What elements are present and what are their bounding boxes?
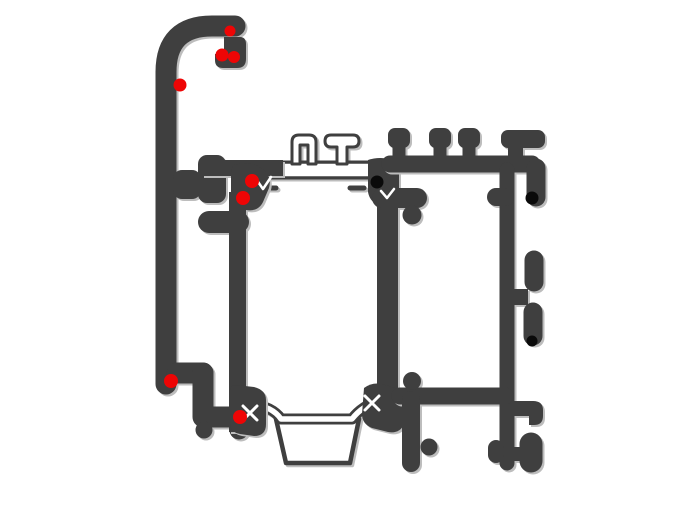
- screw-boss-stem: [434, 143, 447, 159]
- black-marker-dot: [526, 192, 539, 205]
- black-marker-dot: [371, 176, 384, 189]
- side-clip-block: [512, 401, 543, 425]
- screw-boss-stem: [393, 143, 406, 159]
- red-marker-dot: [228, 51, 240, 63]
- stem-side-lug: [173, 170, 201, 199]
- thermal-tab-tee: [325, 135, 359, 164]
- tee-boss-stem: [508, 144, 523, 159]
- sash-right-wall: [377, 198, 398, 393]
- red-marker-dot: [233, 410, 247, 424]
- red-marker-dot: [164, 374, 178, 388]
- black-marker-dot: [527, 336, 538, 347]
- dog-bone-connector: [512, 447, 526, 461]
- red-marker-dot: [236, 191, 250, 205]
- right-frame-profile: [388, 128, 545, 463]
- sash-profile: [202, 158, 417, 436]
- bottom-thermal-break: [250, 400, 380, 463]
- screw-boss-stem: [463, 143, 476, 159]
- red-marker-dot: [225, 26, 236, 37]
- red-marker-dot: [245, 174, 259, 188]
- crimp-marks: [243, 177, 394, 420]
- glazing-trapezoid: [276, 419, 359, 463]
- accessory-connector: [512, 289, 528, 305]
- thermal-tab-staple: [292, 135, 316, 164]
- profile-cross-section-diagram: [0, 0, 700, 525]
- red-marker-dot: [216, 49, 229, 62]
- diagram-canvas: [0, 0, 700, 525]
- red-marker-dot: [174, 79, 187, 92]
